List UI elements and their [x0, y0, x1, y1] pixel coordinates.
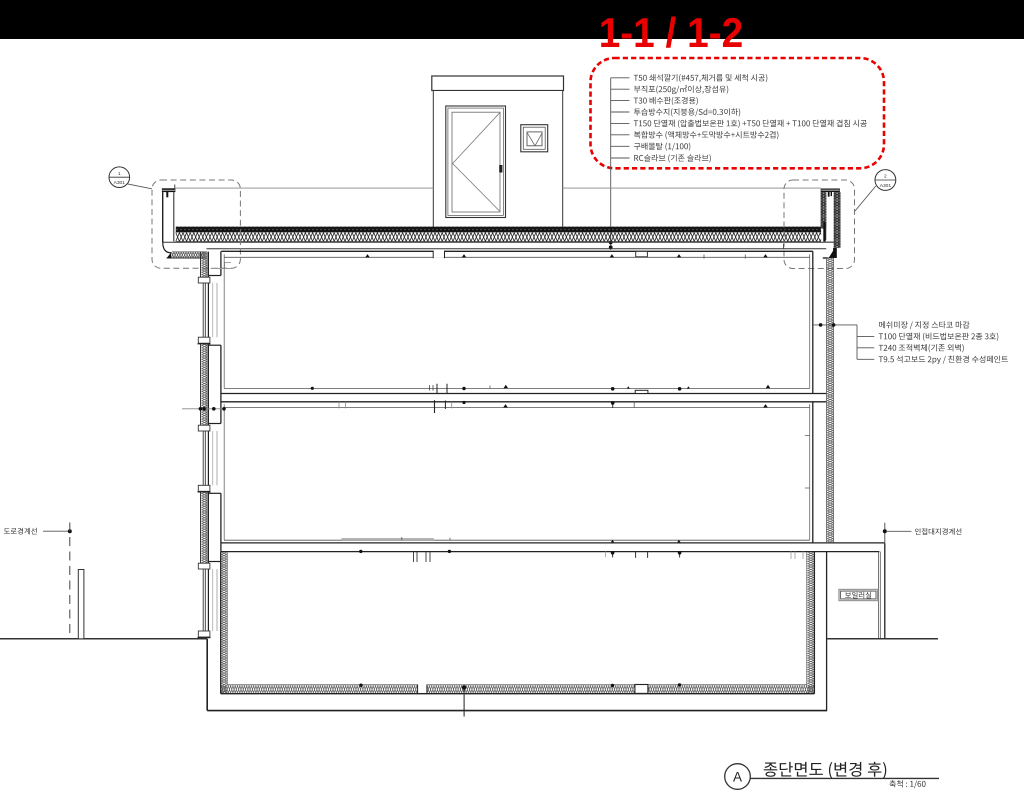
- svg-text:A: A: [733, 769, 742, 784]
- svg-text:A301: A301: [114, 180, 126, 186]
- svg-text:A301: A301: [880, 183, 892, 189]
- svg-text:1-1 / 1-2: 1-1 / 1-2: [599, 9, 744, 56]
- svg-text:2: 2: [884, 174, 887, 180]
- svg-text:1: 1: [118, 171, 121, 177]
